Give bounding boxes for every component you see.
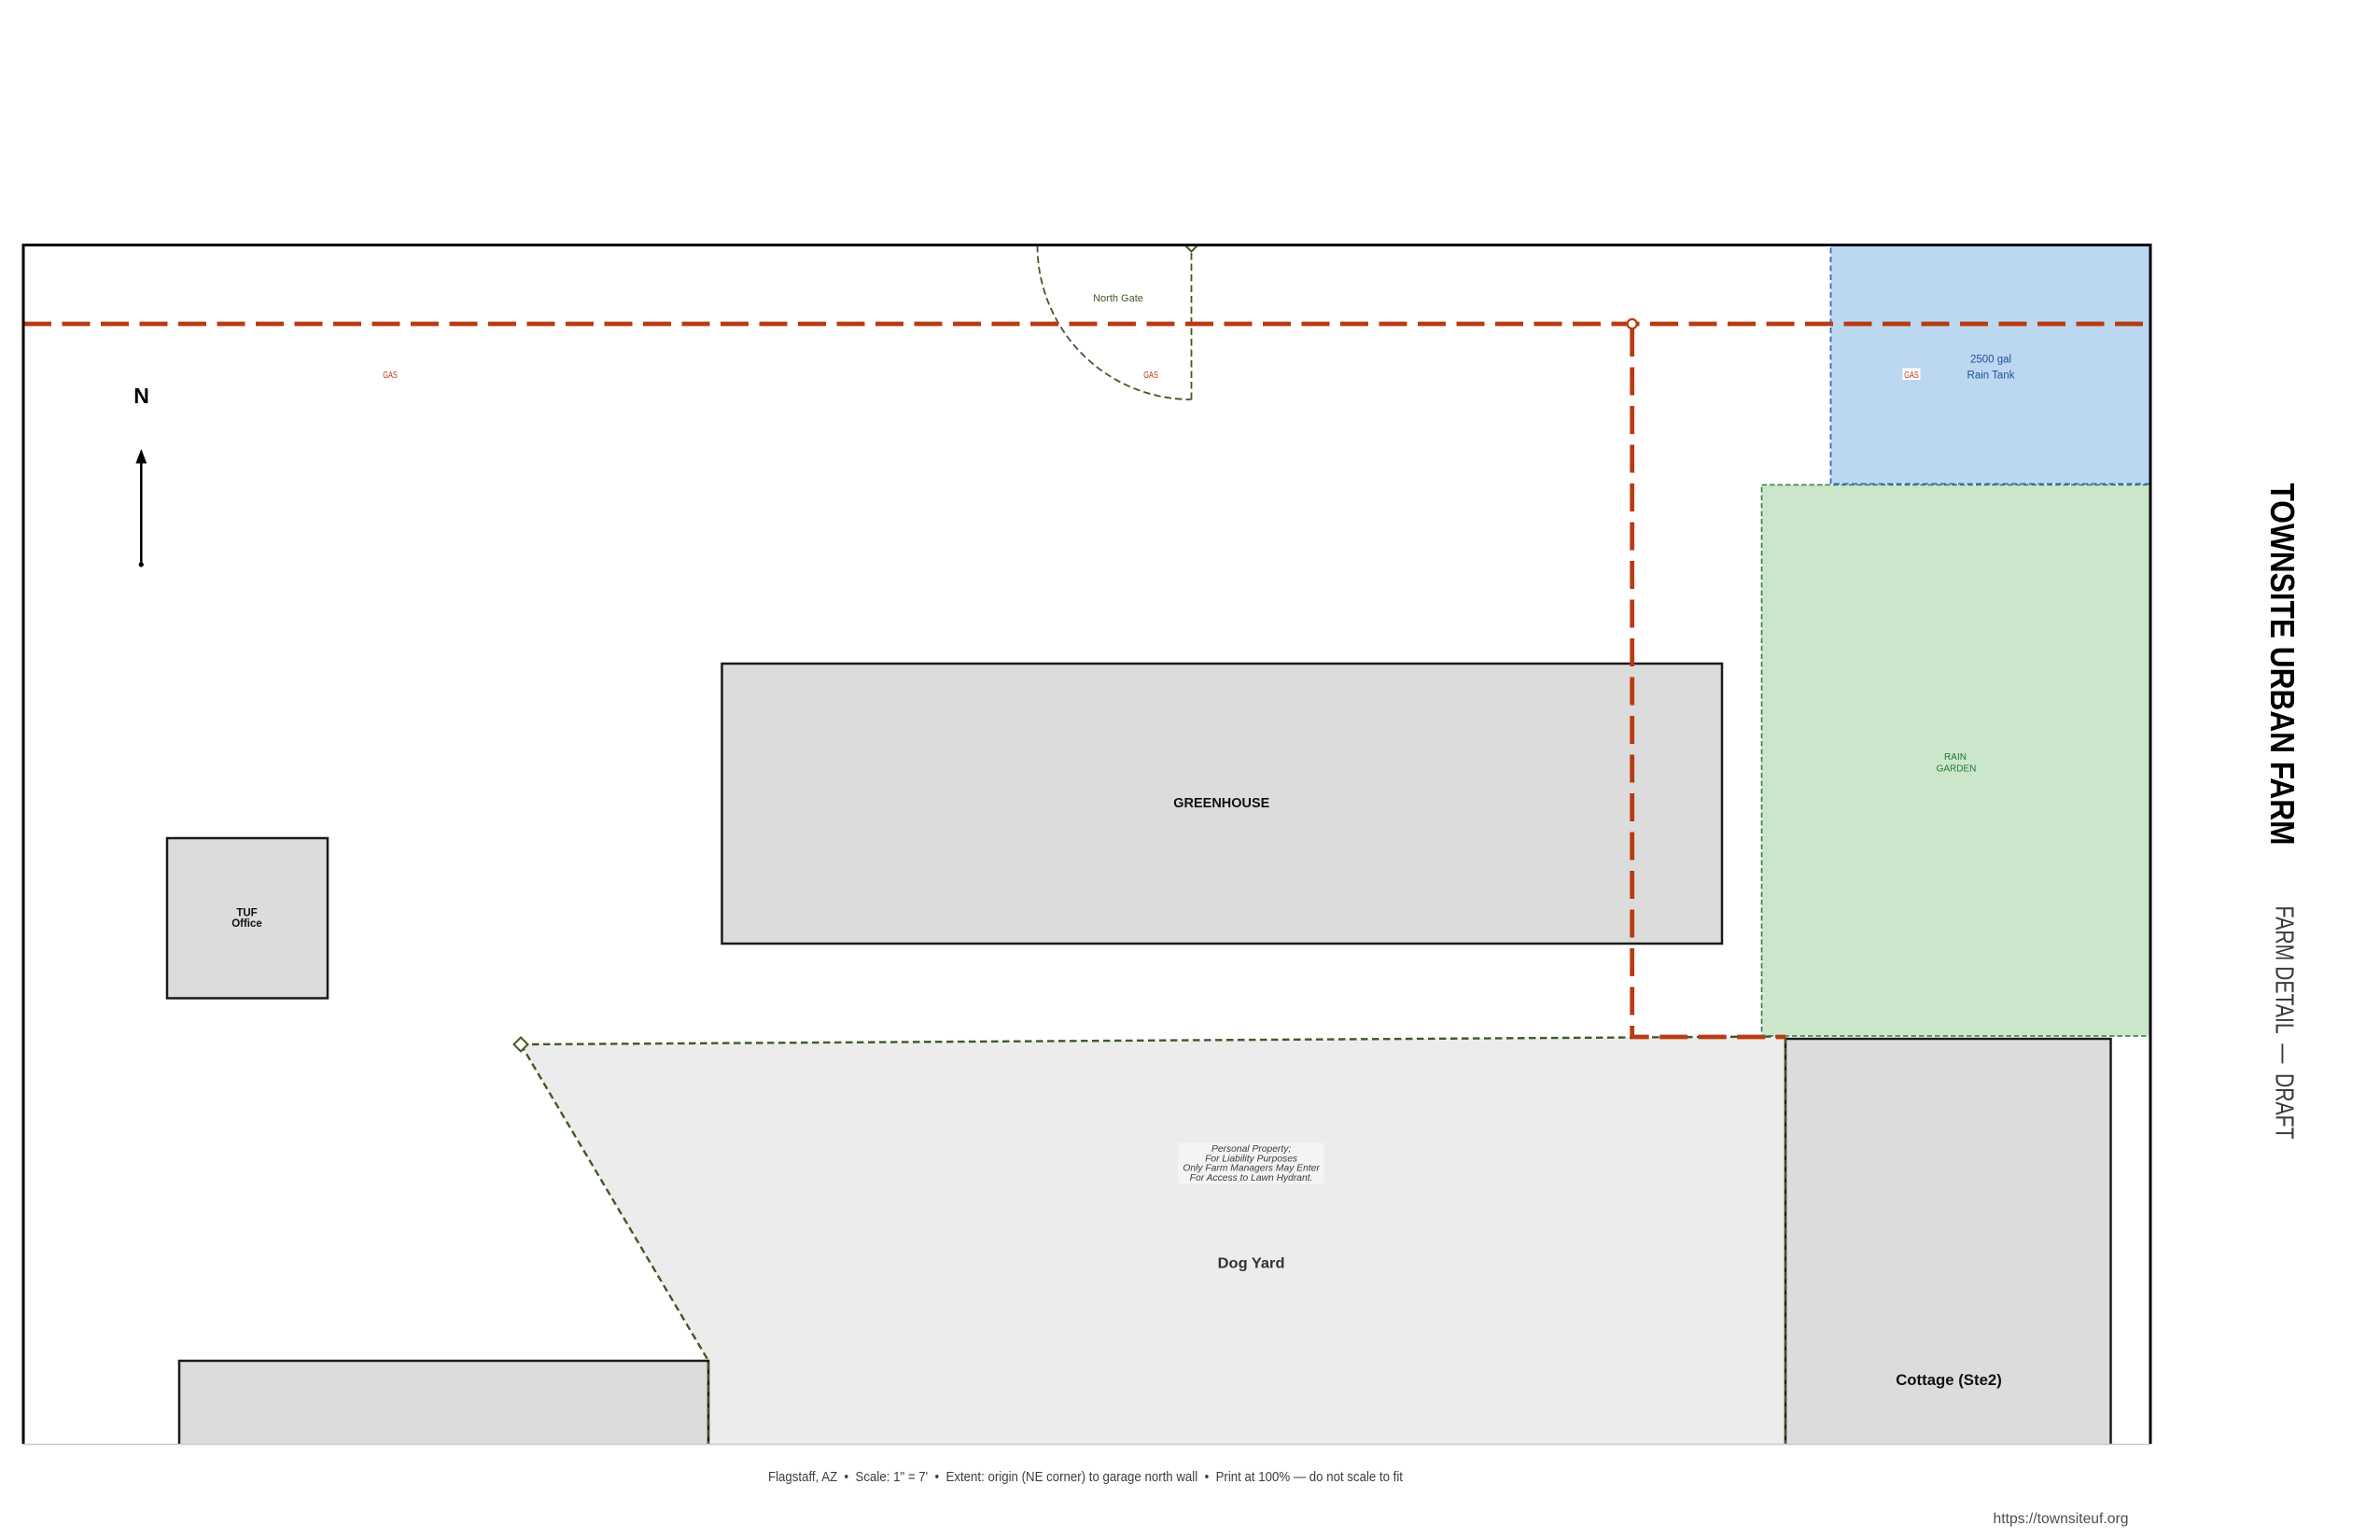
svg-text:TUF: TUF (236, 908, 257, 919)
svg-text:FARM DETAIL — DRAFT: FARM DETAIL — DRAFT (2271, 906, 2300, 1140)
svg-text:RAIN: RAIN (1944, 752, 1967, 763)
svg-text:https://townsiteuf.org: https://townsiteuf.org (1994, 1511, 2129, 1527)
svg-text:Flagstaff, AZ • Scale: 1" =: Flagstaff, AZ • Scale: 1" = 7' • Extent:… (768, 1469, 1404, 1485)
svg-text:Office: Office (231, 918, 262, 930)
svg-text:GAS: GAS (383, 371, 398, 381)
svg-text:Rain Tank: Rain Tank (1967, 371, 2015, 382)
svg-text:N: N (133, 384, 149, 408)
svg-text:For Access to Lawn Hydrant.: For Access to Lawn Hydrant. (1190, 1173, 1313, 1183)
svg-text:North Gate: North Gate (1093, 293, 1143, 304)
svg-text:TOWNSITE URBAN FARM: TOWNSITE URBAN FARM (2263, 483, 2302, 846)
svg-text:GREENHOUSE: GREENHOUSE (1173, 796, 1269, 811)
svg-text:GAS: GAS (1143, 371, 1158, 381)
svg-text:2500 gal: 2500 gal (1970, 355, 2011, 366)
svg-text:GAS: GAS (1904, 371, 1919, 381)
svg-text:GARDEN: GARDEN (1937, 764, 1977, 775)
svg-text:Cottage (Ste2): Cottage (Ste2) (1896, 1372, 2002, 1389)
svg-text:Dog Yard: Dog Yard (1218, 1256, 1285, 1272)
